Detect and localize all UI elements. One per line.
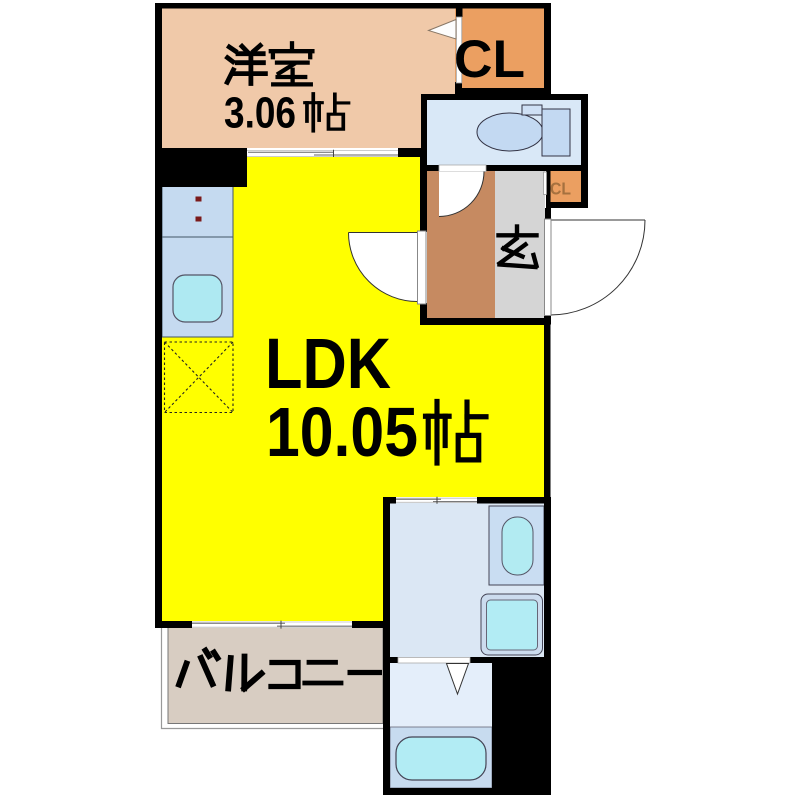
svg-text:CL: CL	[550, 179, 571, 199]
svg-text:3.06: 3.06	[224, 89, 296, 138]
svg-text:CL: CL	[454, 30, 525, 89]
svg-text:10.05: 10.05	[266, 393, 418, 471]
